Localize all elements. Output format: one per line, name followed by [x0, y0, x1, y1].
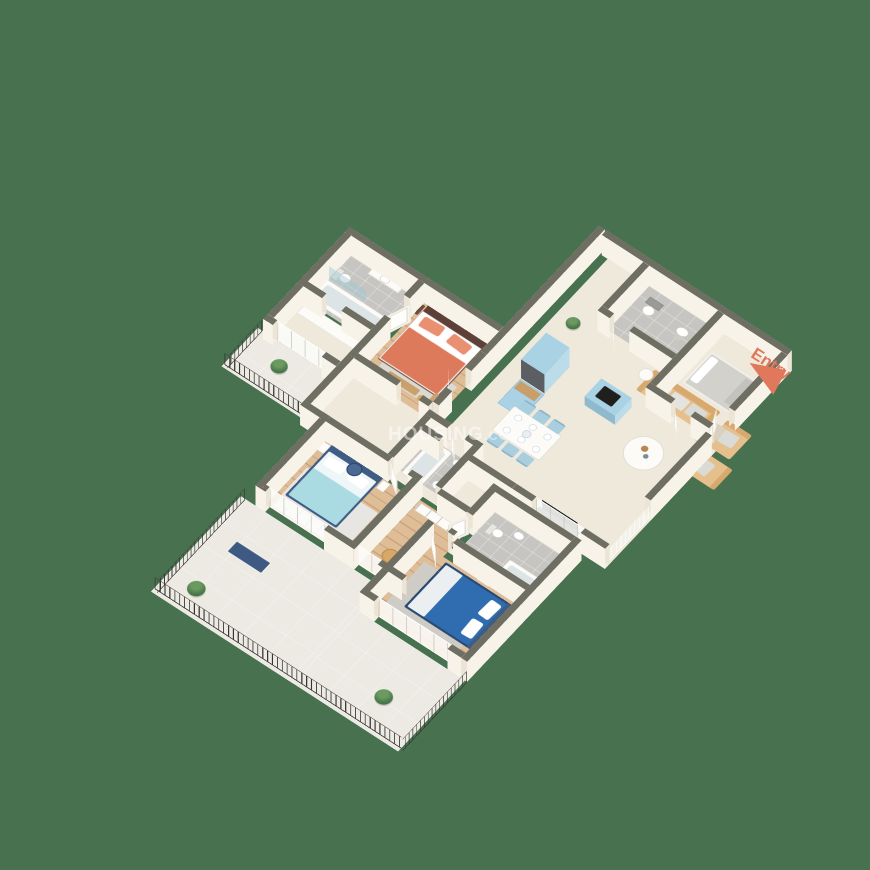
floor-plan-3d — [44, 121, 828, 791]
floor-plan-screenshot: HOUSING.COM Entry — [0, 0, 870, 870]
table-decor — [642, 453, 650, 459]
wall-face — [348, 546, 353, 569]
plate — [530, 445, 541, 454]
watermark-suffix: .COM — [484, 428, 522, 443]
plate — [513, 413, 524, 422]
watermark: HOUSING.COM — [388, 424, 522, 446]
wall-living-bottom-b — [581, 548, 610, 569]
table-decor — [639, 444, 649, 453]
cooktop — [595, 386, 622, 407]
plate — [542, 432, 553, 441]
wall-bed2-bottom-a — [255, 501, 269, 512]
wall-master-right-a — [465, 371, 486, 391]
watermark-main: HOUSING — [388, 424, 484, 445]
